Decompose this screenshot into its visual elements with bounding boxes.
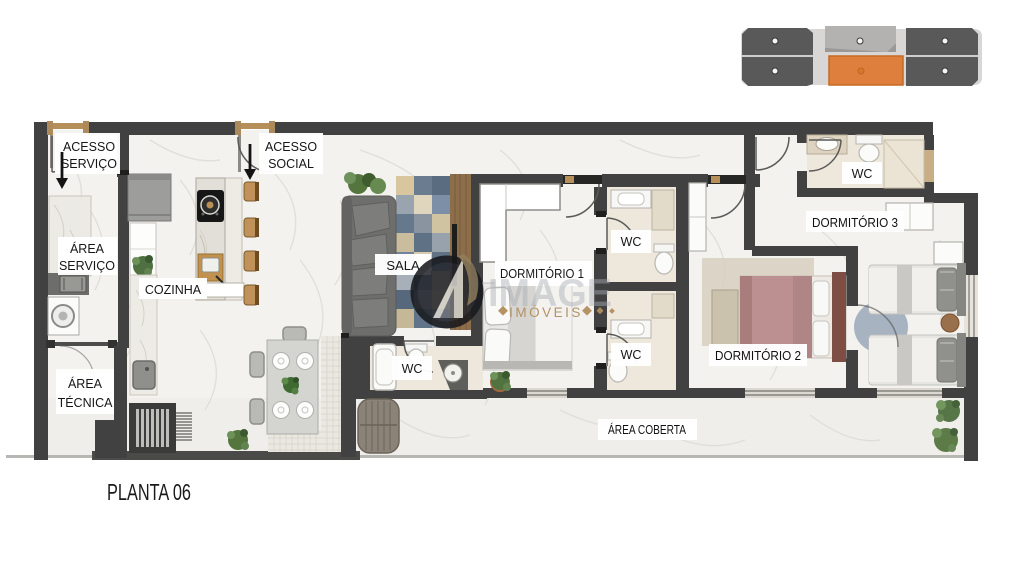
svg-text:SERVIÇO: SERVIÇO xyxy=(59,259,115,273)
svg-text:TÉCNICA: TÉCNICA xyxy=(58,395,114,410)
svg-text:PLANTA 06: PLANTA 06 xyxy=(107,479,191,505)
svg-text:ÁREA COBERTA: ÁREA COBERTA xyxy=(608,422,687,437)
svg-text:WC: WC xyxy=(621,348,642,362)
svg-text:IMÓVEIS: IMÓVEIS xyxy=(509,305,583,320)
svg-text:COZINHA: COZINHA xyxy=(145,283,202,297)
svg-text:ACESSO: ACESSO xyxy=(63,140,115,154)
svg-text:ACESSO: ACESSO xyxy=(265,140,317,154)
svg-text:ÁREA: ÁREA xyxy=(70,241,105,256)
svg-text:DORMITÓRIO 2: DORMITÓRIO 2 xyxy=(715,348,801,363)
svg-text:SALA: SALA xyxy=(386,258,420,273)
svg-text:ÁREA: ÁREA xyxy=(68,376,103,391)
svg-text:SOCIAL: SOCIAL xyxy=(268,157,314,171)
svg-text:WC: WC xyxy=(621,235,642,249)
svg-text:WC: WC xyxy=(402,362,423,376)
svg-text:SERVIÇO: SERVIÇO xyxy=(61,157,117,171)
svg-text:DORMITÓRIO 3: DORMITÓRIO 3 xyxy=(812,215,898,230)
svg-text:WC: WC xyxy=(852,167,873,181)
